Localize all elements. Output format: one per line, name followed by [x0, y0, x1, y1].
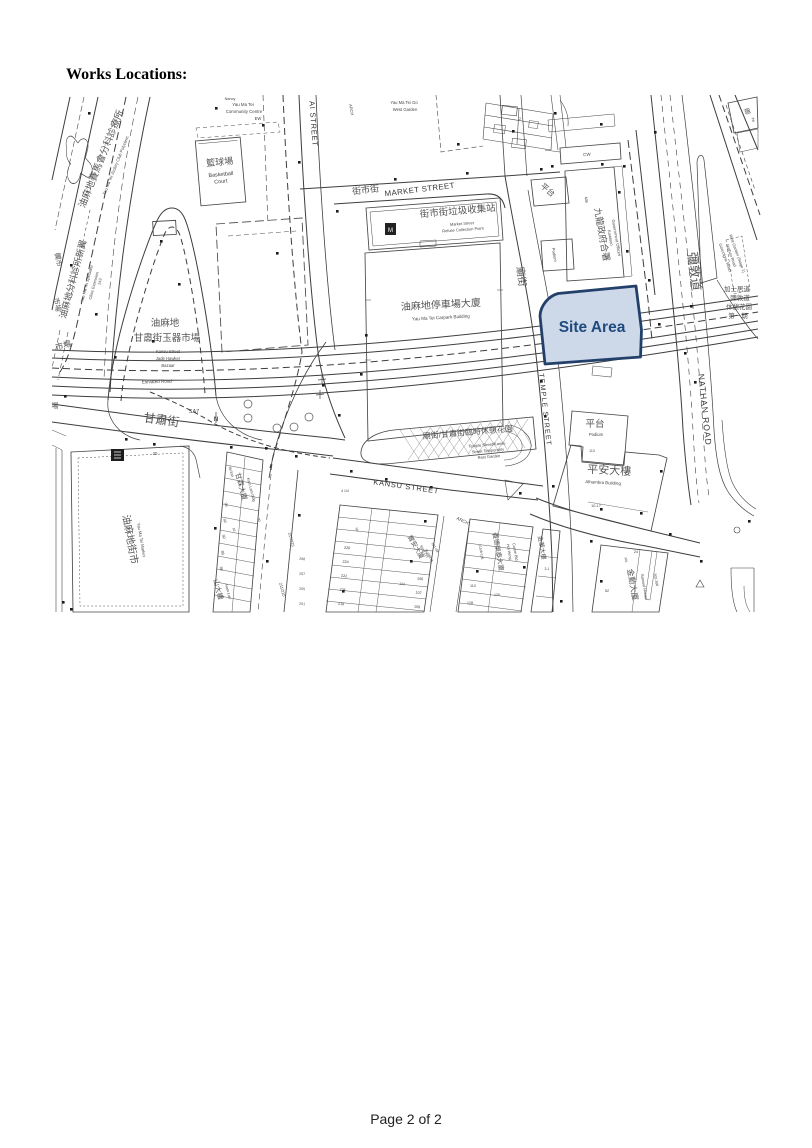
- svg-text:甘肅街玉器市場: 甘肅街玉器市場: [134, 332, 201, 344]
- svg-text:302: 302: [624, 557, 629, 563]
- svg-text:M: M: [388, 228, 393, 234]
- svg-text:218: 218: [338, 602, 345, 607]
- svg-text:SA7: SA7: [189, 409, 199, 415]
- svg-text:Jade Hawker: Jade Hawker: [156, 356, 181, 361]
- svg-text:Yau Ma Tei Go: Yau Ma Tei Go: [390, 100, 418, 105]
- svg-text:Court: Court: [214, 178, 228, 185]
- svg-text:街市街垃圾收集站: 街市街垃圾收集站: [419, 202, 496, 221]
- svg-text:2: 2: [519, 117, 521, 121]
- svg-text:ARCH: ARCH: [348, 104, 355, 116]
- svg-text:96: 96: [223, 502, 228, 507]
- svg-text:405: 405: [583, 196, 588, 203]
- svg-text:222: 222: [341, 574, 348, 579]
- svg-text:油麻地停車場大廈: 油麻地停車場大廈: [401, 296, 482, 313]
- svg-text:30: 30: [257, 517, 262, 522]
- svg-text:平台: 平台: [585, 418, 604, 430]
- svg-text:AI STREET: AI STREET: [307, 101, 319, 147]
- svg-text:302-308: 302-308: [653, 573, 659, 586]
- svg-text:115/8-116: 115/8-116: [478, 544, 485, 560]
- svg-text:街市街: 街市街: [351, 182, 379, 196]
- svg-text:油麻地街市: 油麻地街市: [120, 514, 141, 565]
- svg-text:211/215: 211/215: [278, 582, 287, 598]
- svg-text:Yau Ma Tei: Yau Ma Tei: [232, 102, 254, 107]
- svg-text:82: 82: [232, 527, 237, 532]
- svg-text:加士居道: 加士居道: [724, 284, 751, 293]
- svg-text:籃球場: 籃球場: [206, 155, 234, 168]
- svg-text:24: 24: [634, 550, 638, 554]
- svg-text:101-99: 101-99: [430, 542, 439, 553]
- svg-text:休憩花園: 休憩花園: [726, 302, 752, 311]
- svg-text:第一期: 第一期: [728, 311, 748, 320]
- svg-text:143: 143: [96, 277, 103, 285]
- svg-text:128: 128: [467, 601, 473, 605]
- svg-text:217/225: 217/225: [287, 532, 296, 548]
- svg-text:Nancy: Nancy: [225, 97, 236, 101]
- svg-text:92: 92: [222, 518, 227, 523]
- svg-text:義德榮泰大廈: 義德榮泰大廈: [491, 532, 507, 572]
- svg-text:Elevated Road: Elevated Road: [142, 378, 173, 384]
- svg-text:224: 224: [342, 560, 349, 565]
- svg-text:3-1: 3-1: [545, 567, 550, 571]
- svg-text:彌敦道: 彌敦道: [730, 293, 750, 302]
- svg-text:Kansu Street: Kansu Street: [156, 349, 181, 354]
- svg-text:Refuse Collection Point: Refuse Collection Point: [442, 225, 485, 233]
- svg-text:4 1/4: 4 1/4: [341, 489, 349, 493]
- svg-text:山大樓: 山大樓: [211, 578, 225, 601]
- svg-text:107: 107: [415, 591, 422, 596]
- svg-text:201: 201: [299, 602, 305, 607]
- svg-text:Nam Lau: Nam Lau: [224, 584, 232, 600]
- svg-text:86: 86: [219, 566, 224, 571]
- svg-text:110: 110: [470, 584, 476, 588]
- svg-text:KANSU STREET: KANSU STREET: [373, 477, 440, 495]
- svg-text:90: 90: [221, 534, 226, 539]
- svg-text:208: 208: [299, 557, 305, 562]
- svg-text:120: 120: [494, 593, 500, 597]
- svg-text:20: 20: [153, 451, 158, 456]
- svg-text:金華大樓: 金華大樓: [536, 535, 548, 560]
- svg-text:10-17: 10-17: [591, 504, 601, 508]
- svg-text:Yau Ma Tei Carpark Building: Yau Ma Tei Carpark Building: [412, 313, 470, 321]
- svg-text:Rest Garden: Rest Garden: [477, 453, 500, 460]
- svg-text:ARCH: ARCH: [456, 516, 470, 526]
- svg-text:EW: EW: [255, 116, 262, 121]
- svg-text:Podium: Podium: [551, 247, 558, 262]
- svg-text:Bazaar: Bazaar: [161, 363, 175, 368]
- svg-text:Basketball: Basketball: [208, 171, 233, 179]
- svg-text:金勳大廈: 金勳大廈: [625, 568, 640, 601]
- svg-text:Podium: Podium: [589, 432, 604, 437]
- svg-text:Alhambra Building: Alhambra Building: [585, 479, 621, 486]
- svg-text:106: 106: [417, 577, 424, 582]
- svg-text:52: 52: [605, 589, 609, 593]
- svg-text:Hoi Heng: Hoi Heng: [506, 544, 513, 560]
- svg-text:Community Centre: Community Centre: [226, 109, 263, 114]
- svg-text:平安大樓: 平安大樓: [587, 462, 632, 478]
- svg-text:平台: 平台: [539, 181, 558, 199]
- svg-text:103: 103: [399, 582, 405, 587]
- svg-text:88: 88: [220, 550, 225, 555]
- svg-text:225: 225: [339, 588, 346, 593]
- svg-text:Tw: Tw: [750, 117, 756, 123]
- svg-text:205: 205: [299, 587, 305, 592]
- svg-text:36/33A: 36/33A: [228, 466, 235, 478]
- svg-text:TEMPLE STREET: TEMPLE STREET: [537, 373, 552, 447]
- svg-text:廟街: 廟街: [514, 266, 530, 288]
- svg-text:Site Area: Site Area: [559, 319, 626, 336]
- svg-text:113: 113: [589, 449, 595, 453]
- svg-text:109: 109: [414, 605, 421, 610]
- svg-text:甘肅街: 甘肅街: [143, 411, 181, 430]
- svg-text:油麻地分科診所新翼: 油麻地分科診所新翼: [57, 239, 89, 320]
- svg-text:226: 226: [344, 546, 351, 551]
- svg-text:彌敦道: 彌敦道: [685, 251, 705, 292]
- svg-text:West Garden: West Garden: [393, 107, 418, 112]
- svg-text:CW: CW: [583, 152, 592, 158]
- svg-text:207: 207: [299, 572, 305, 577]
- svg-text:油麻地: 油麻地: [151, 317, 180, 329]
- svg-text:甘霖大廈: 甘霖大廈: [233, 472, 249, 501]
- svg-text:場: 場: [52, 401, 59, 410]
